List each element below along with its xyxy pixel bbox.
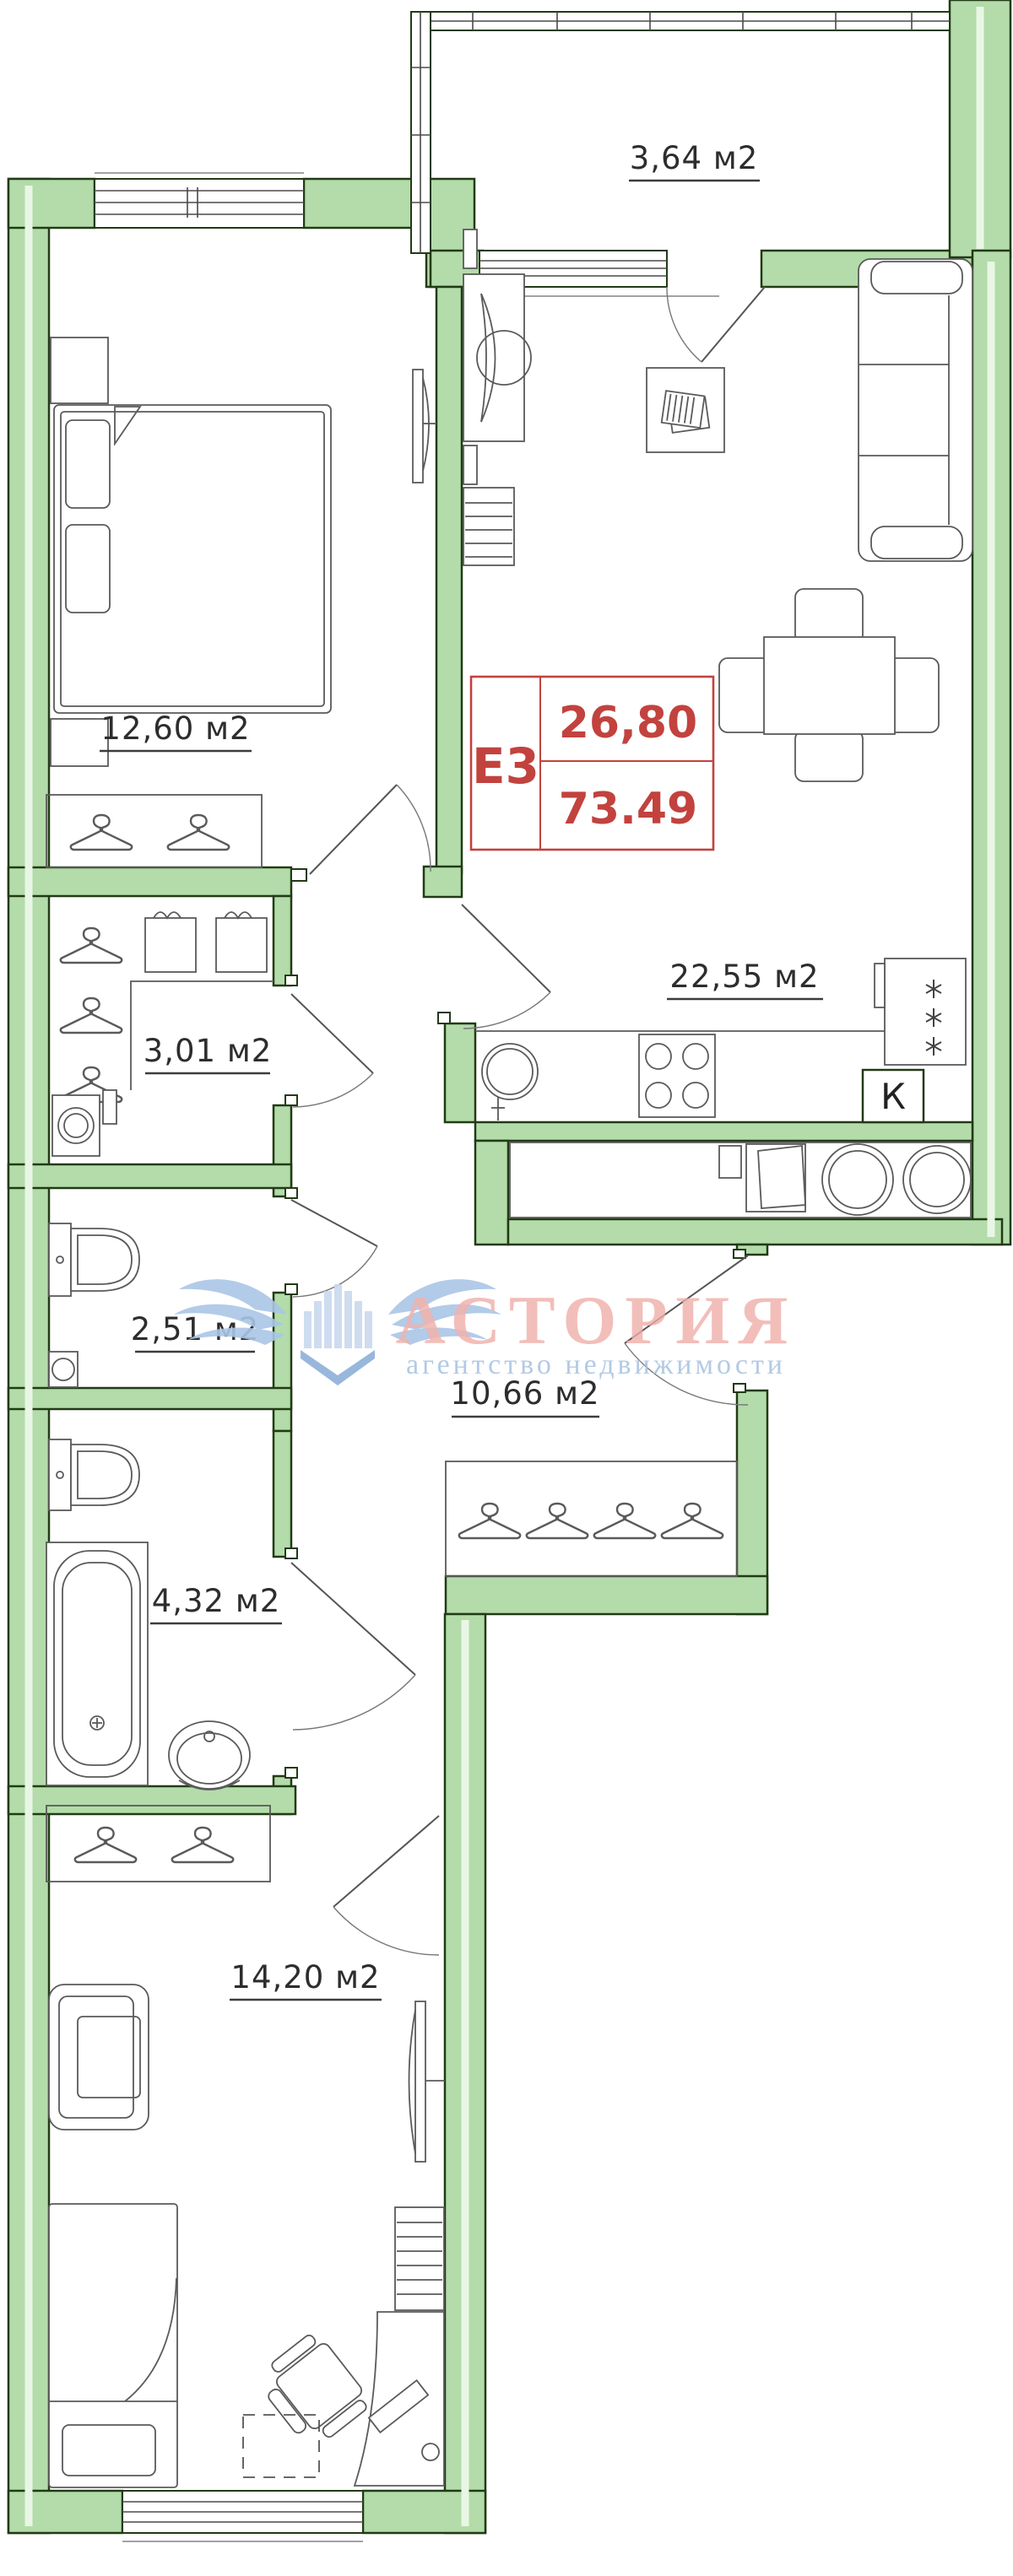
- wall-niche-left: [475, 1141, 508, 1245]
- living-area-value: 26,80: [559, 698, 697, 748]
- tv-stand: [463, 230, 531, 565]
- vent-label: К: [880, 1076, 906, 1117]
- floor-plan-drawing: К: [0, 0, 1013, 2576]
- bedroom-door: [310, 785, 431, 874]
- book-icon: [662, 391, 710, 433]
- watermark-brand: АСТОРИЯ: [396, 1282, 797, 1358]
- wall-kitchen-door: [445, 1023, 475, 1122]
- armchair: [49, 1985, 149, 2130]
- area-label-hallway: 10,66 м2: [450, 1375, 599, 1412]
- total-area-value: 73.49: [559, 784, 697, 834]
- chair: [795, 731, 863, 781]
- wc-sink: [49, 1352, 78, 1387]
- vent-box: К: [863, 1070, 924, 1122]
- pillow: [66, 525, 110, 613]
- sofa: [859, 259, 972, 561]
- wall-closet-bottom: [8, 1164, 291, 1188]
- dining-table: [764, 637, 895, 734]
- bedroom-wardrobe: [46, 795, 262, 867]
- kitchen-fixtures: К: [475, 959, 971, 1218]
- room2-door: [333, 1816, 439, 1955]
- floor-plan-page: К: [0, 0, 1013, 2576]
- desk-chair: [252, 2329, 373, 2452]
- info-box: Е3 26,80 73.49: [471, 677, 713, 850]
- bedroom-window: [95, 173, 304, 228]
- area-label-bedroom: 12,60 м2: [100, 710, 250, 747]
- wc-fixtures: [49, 1223, 139, 1387]
- hallway-furniture: [446, 1461, 737, 1576]
- toilet: [49, 1439, 139, 1510]
- wall-kitchen-band: [475, 1122, 972, 1141]
- bookshelf: [395, 2207, 444, 2310]
- fridge: [875, 959, 966, 1065]
- area-label-closet: 3,01 м2: [144, 1033, 273, 1069]
- wall-bedroom-top-left: [8, 179, 95, 228]
- wall-bath-right: [274, 1431, 291, 1557]
- shelf-rack: [463, 488, 514, 565]
- wall-hall-bottom: [446, 1576, 767, 1614]
- chair: [795, 589, 863, 643]
- closet-door: [291, 994, 373, 1107]
- pillow: [66, 420, 110, 508]
- utility-niche: [510, 1142, 971, 1218]
- bathroom-door: [291, 1563, 415, 1730]
- watermark: АСТОРИЯ агентство недвижимости: [174, 1279, 796, 1385]
- dryer-machine: [903, 1146, 971, 1213]
- coffee-table: [647, 368, 724, 452]
- bedroom-furniture: [46, 338, 436, 867]
- kitchen-door: [462, 905, 550, 1029]
- wall-partition-foot: [424, 867, 462, 897]
- area-label-living: 22,55 м2: [669, 959, 819, 995]
- dining-set: [719, 589, 939, 781]
- area-label-balcony: 3,64 м2: [630, 140, 759, 176]
- room2-wardrobe: [46, 1806, 270, 1882]
- wall-bath-bottom: [8, 1786, 295, 1814]
- room2-tv: [409, 2001, 446, 2162]
- wall-closet-right-a: [274, 896, 291, 986]
- wall-partition-bedroom-living: [436, 287, 462, 873]
- nightstand-top: [51, 338, 108, 403]
- toilet: [49, 1223, 139, 1296]
- small-cabinet: [719, 1146, 741, 1178]
- room2-furniture: [46, 1806, 445, 2487]
- corner-desk: [355, 2312, 444, 2486]
- cabinet-open: [746, 1144, 805, 1212]
- nightstand-bottom: [51, 719, 108, 766]
- shelf-box: [216, 912, 267, 972]
- balcony-door: [667, 287, 765, 362]
- wc-door: [291, 1200, 377, 1297]
- area-label-bedroom2: 14,20 м2: [230, 1959, 380, 1995]
- bath-sink: [169, 1721, 250, 1790]
- wall-niche-bottom: [508, 1219, 1002, 1245]
- kitchen-sink: [482, 1044, 538, 1121]
- double-bed: [54, 405, 331, 713]
- mouse-icon: [422, 2444, 439, 2460]
- washing-machine: [822, 1144, 893, 1215]
- doors: [291, 287, 765, 1955]
- single-bed: [49, 2204, 177, 2487]
- plan-code: Е3: [472, 737, 539, 795]
- shelf-box: [145, 912, 196, 972]
- wall-wc-bottom: [8, 1388, 291, 1409]
- washer-closet: [52, 1090, 116, 1156]
- hall-wardrobe: [446, 1461, 737, 1576]
- watermark-tagline: агентство недвижимости: [406, 1349, 786, 1380]
- bedroom-tv: [413, 370, 436, 483]
- area-label-bathroom: 4,32 м2: [152, 1583, 281, 1619]
- stove: [639, 1034, 715, 1117]
- keyboard-icon: [369, 2380, 428, 2433]
- balcony-glazing-top: [411, 12, 950, 30]
- room2-window: [122, 2491, 363, 2541]
- bathtub: [46, 1542, 148, 1785]
- wall-bedroom-bottom: [8, 867, 291, 896]
- balcony-glazing-left: [411, 12, 431, 253]
